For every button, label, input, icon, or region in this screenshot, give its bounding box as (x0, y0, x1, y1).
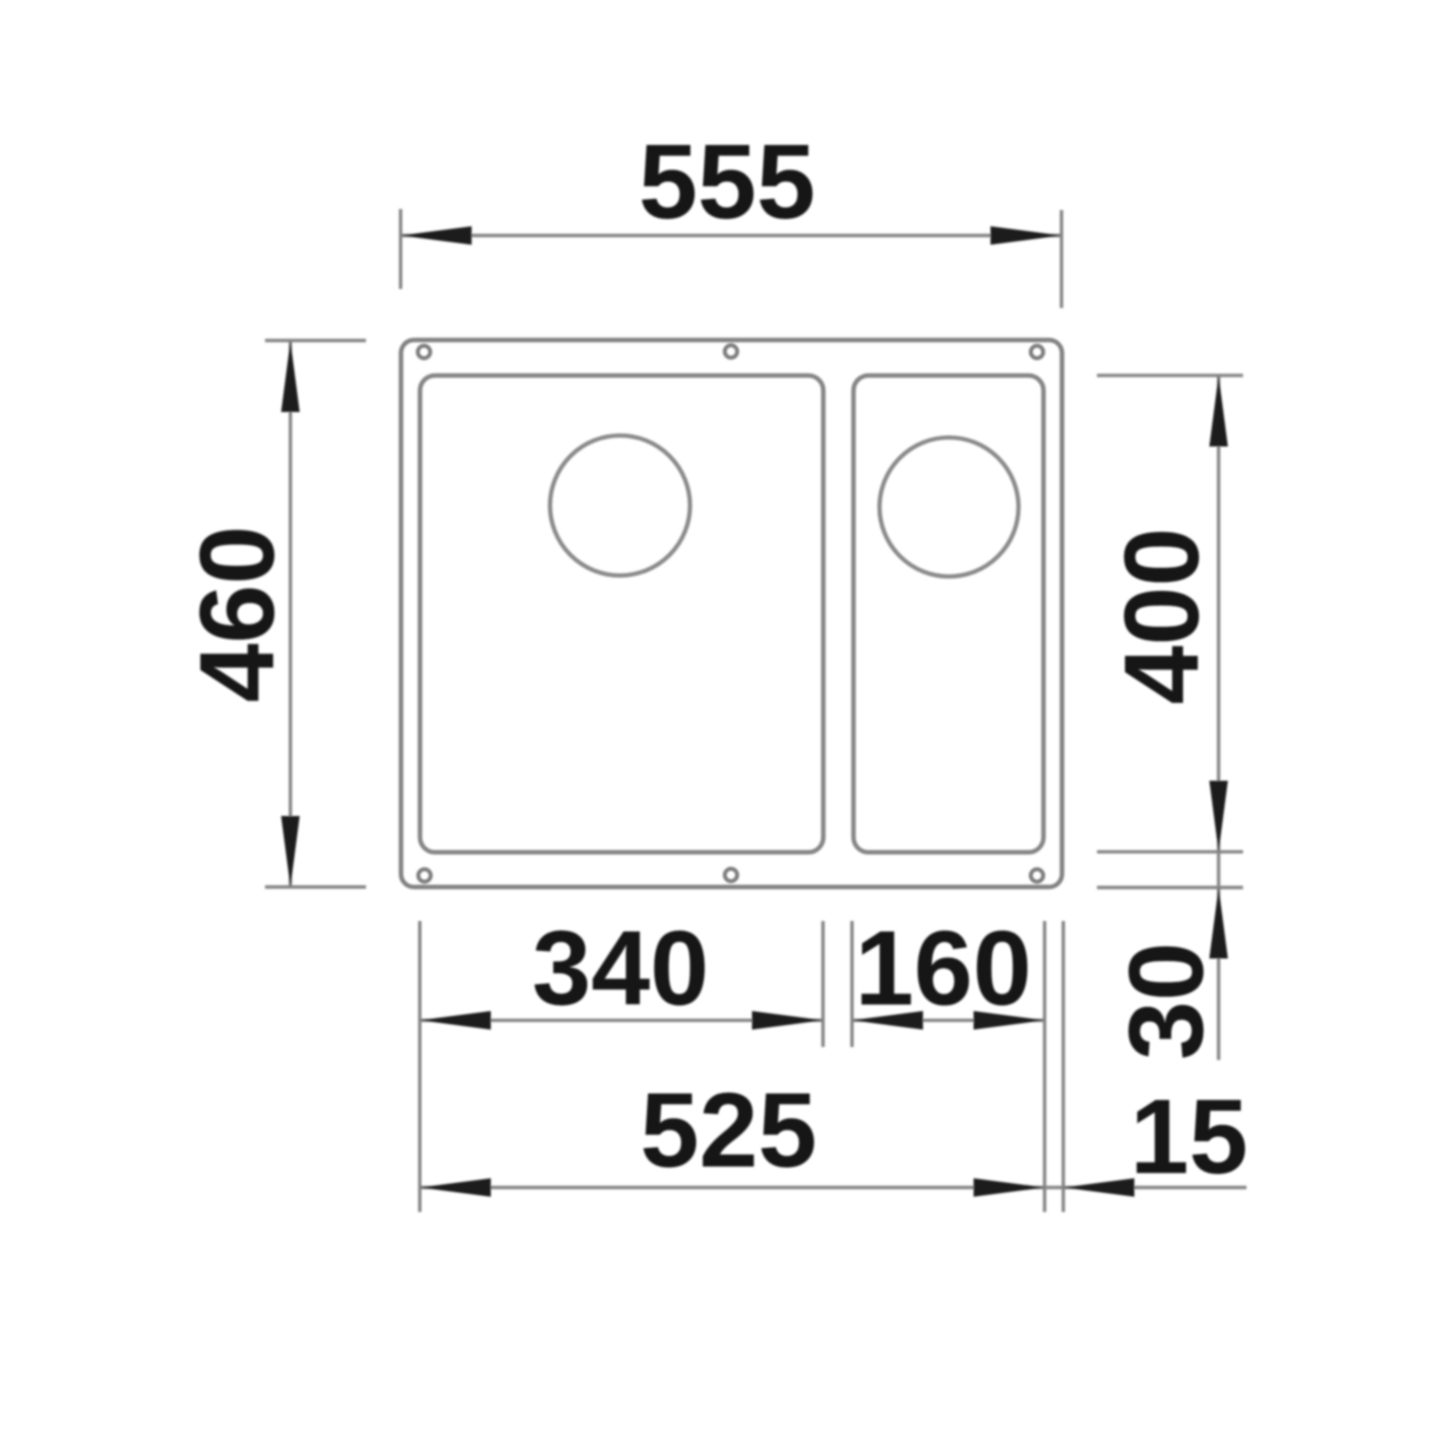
svg-text:555: 555 (639, 123, 816, 241)
svg-text:340: 340 (532, 910, 709, 1028)
svg-text:525: 525 (640, 1072, 817, 1190)
svg-text:160: 160 (855, 910, 1032, 1028)
svg-text:460: 460 (178, 526, 296, 703)
svg-text:15: 15 (1130, 1078, 1248, 1196)
svg-text:30: 30 (1108, 942, 1226, 1060)
svg-text:400: 400 (1103, 528, 1221, 705)
